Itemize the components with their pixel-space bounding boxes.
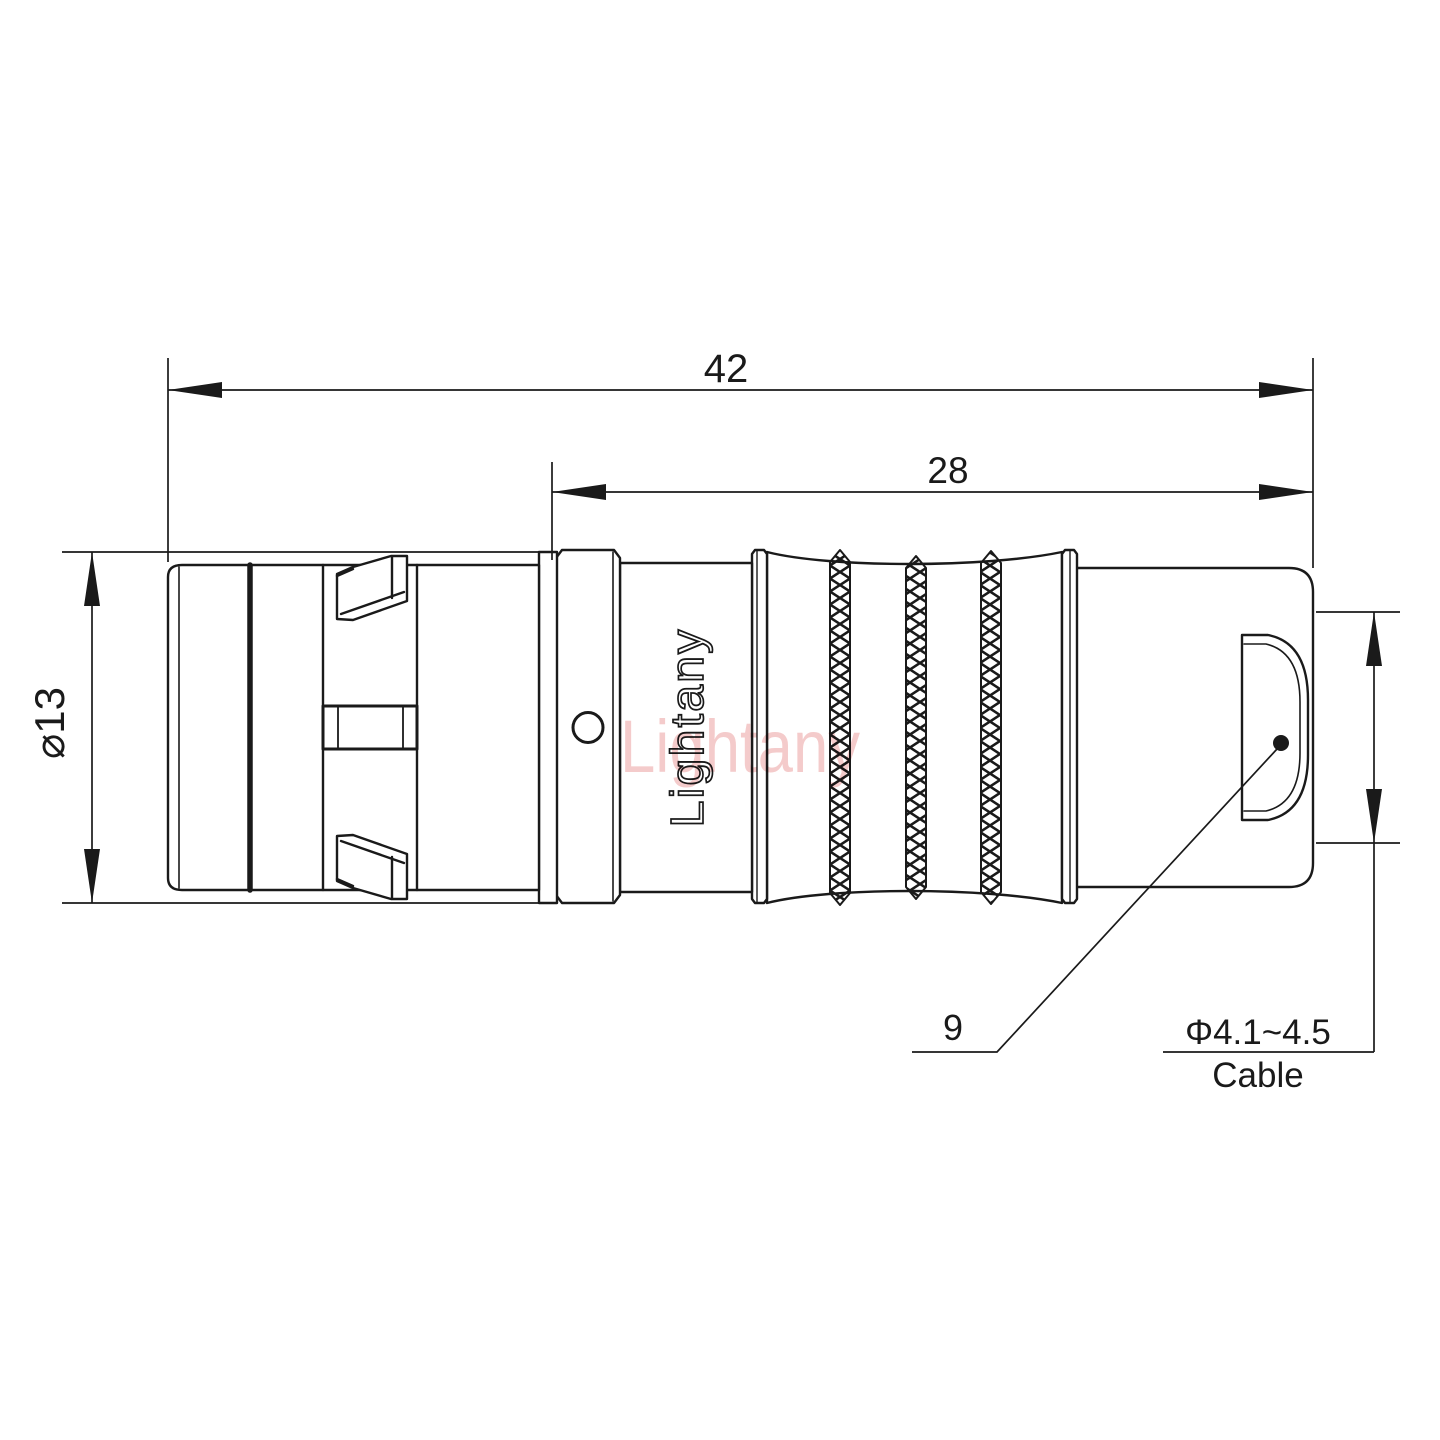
arrowhead-rear-left (552, 484, 606, 500)
dim-rear-length-label: 28 (927, 450, 968, 491)
shell-lip (539, 552, 557, 903)
arrowhead-diameter-bottom (84, 849, 100, 903)
arrowhead-diameter-top (84, 552, 100, 606)
technical-drawing-canvas: Lightany 42 28 ⌀13 9 Φ4.1~4.5 Cable Ligh… (0, 0, 1440, 1440)
arrowhead-cable-top (1366, 612, 1382, 666)
collar-hole (573, 713, 603, 743)
arrowhead-rear-right (1259, 484, 1313, 500)
drawing-page: Lightany 42 28 ⌀13 9 Φ4.1~4.5 Cable Ligh… (0, 0, 1440, 1440)
cable-point-marker (1273, 735, 1289, 751)
arrowhead-overall-right (1259, 382, 1313, 398)
watermark-text: Lightany (620, 705, 860, 788)
shell-size-label: 9 (943, 1007, 963, 1048)
cable-word-label: Cable (1212, 1056, 1303, 1095)
dim-body-diameter-label: ⌀13 (26, 687, 73, 759)
knurl-band-2 (906, 556, 926, 899)
knurl-band-3 (981, 551, 1001, 904)
cable-diameter-label: Φ4.1~4.5 (1185, 1013, 1331, 1052)
dim-overall-length-label: 42 (704, 347, 749, 391)
strain-relief-recess (1242, 635, 1308, 820)
arrowhead-overall-left (168, 382, 222, 398)
arrowhead-cable-bottom (1366, 789, 1382, 843)
